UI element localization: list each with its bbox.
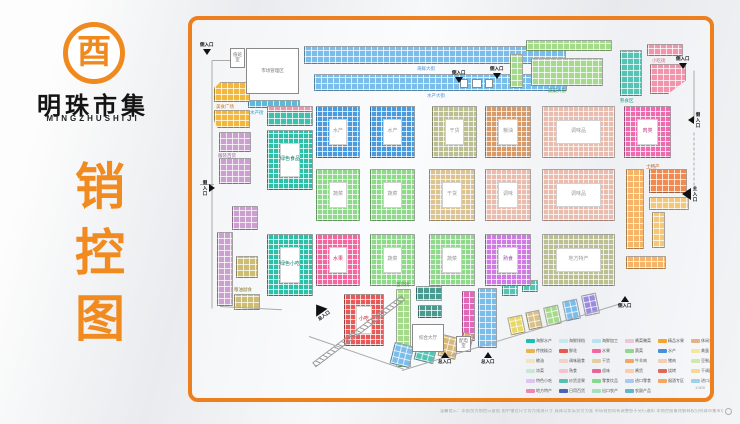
block-label: 肉类 xyxy=(625,107,670,157)
legend-item: 进口海鲜 xyxy=(691,378,710,384)
legend-swatch xyxy=(592,349,601,354)
legend-label: 酱菜腌菜 xyxy=(635,338,651,344)
legend-swatch xyxy=(691,359,700,364)
road-line xyxy=(694,133,695,191)
legend-swatch xyxy=(592,359,601,364)
legend-swatch xyxy=(559,389,568,394)
legend-label: 卤味 xyxy=(602,368,610,374)
legend-item: 出口农产 xyxy=(592,388,624,394)
stall-ring: 地方特产 xyxy=(542,234,615,286)
legend-swatch xyxy=(625,359,634,364)
legend-swatch xyxy=(592,379,601,384)
legend-item: 干货 xyxy=(592,358,624,364)
legend-swatch xyxy=(559,359,568,364)
entrance-marker: 主入口 xyxy=(682,186,698,203)
legend-item: 水产 xyxy=(658,348,690,354)
stall-ring: 调味 xyxy=(485,169,531,221)
area-label: 土特产 xyxy=(646,164,660,170)
legend-label: 猪肉 xyxy=(668,358,676,364)
legend-label: 休闲食品 xyxy=(701,338,710,344)
legend-swatch xyxy=(625,389,634,394)
legend-swatch xyxy=(691,339,700,344)
entrance-marker: 侧入口 xyxy=(452,70,466,83)
entrance-label: 总入口 xyxy=(481,359,495,365)
entrance-label: 侧入口 xyxy=(200,42,214,48)
block-label: 配电室 xyxy=(457,337,470,351)
legend-label: 熟食 xyxy=(569,368,577,374)
legend-item: 猪肉 xyxy=(658,358,690,364)
legend-swatch xyxy=(625,369,634,374)
entrance-marker: 侧入口 xyxy=(618,296,632,309)
legend-swatch xyxy=(559,349,568,354)
legend-label: 传统糕点 xyxy=(536,348,552,354)
entrance-arrow-icon xyxy=(455,77,463,83)
entrance-label: 侧入口 xyxy=(695,112,701,129)
watermark-icon xyxy=(725,408,732,415)
legend-label: 炒货坚果 xyxy=(569,378,585,384)
legend-label: 粮油 xyxy=(536,358,544,364)
stall-ring: 干货 xyxy=(429,169,475,221)
block-label: 综合大厅 xyxy=(413,325,443,351)
block-label: 市场管理区 xyxy=(247,49,298,93)
entrance-marker: 侧入口 xyxy=(490,66,504,79)
legend-label: 牛羊肉 xyxy=(635,358,647,364)
block-label: 干货 xyxy=(433,107,476,157)
area-label: 粮油副食 xyxy=(234,287,252,293)
block-label: 水产 xyxy=(371,107,414,157)
stall-block xyxy=(267,106,313,112)
stall-ring: 粮油 xyxy=(485,106,531,158)
block-label: 调味品 xyxy=(543,170,614,220)
legend-label: 烧烤 xyxy=(668,368,676,374)
stall-ring: 水产 xyxy=(316,106,360,158)
stall-block xyxy=(219,132,251,152)
legend-item: 地方特产 xyxy=(526,388,558,394)
stall-block xyxy=(418,305,442,318)
legend-label: 地方特产 xyxy=(536,388,552,394)
entrance-label: 侧入口 xyxy=(452,70,466,76)
legend-swatch xyxy=(691,369,700,374)
entrance-arrow-icon xyxy=(441,352,449,358)
legend-label: 鲜花 xyxy=(569,348,577,354)
area-label: 海鲜大街 xyxy=(417,66,435,72)
block-label: 蔬菜 xyxy=(317,170,359,220)
entrance-arrow-icon xyxy=(484,352,492,358)
legend: 海鲜水产海鲜排档海鲜加工酱菜腌菜精品水果休闲食品传统糕点鲜花水果蔬菜水产禽蛋粮油… xyxy=(526,338,710,394)
legend-swatch xyxy=(625,349,634,354)
stall-ring: 小吃 xyxy=(344,294,384,346)
building: 综合大厅 xyxy=(412,324,444,352)
legend-swatch xyxy=(658,369,667,374)
legend-swatch xyxy=(691,349,700,354)
legend-item: 农副产品 xyxy=(625,388,657,394)
legend-item: 水果 xyxy=(592,348,624,354)
block-label: 小吃 xyxy=(345,295,383,345)
entrance-marker: 侧入口 xyxy=(202,180,215,197)
legend-item: 熟食 xyxy=(559,368,591,374)
area-label: 熟食区 xyxy=(620,98,634,104)
legend-item: 炒货坚果 xyxy=(559,378,591,384)
legend-item: 豆制品 xyxy=(691,358,710,364)
legend-item: 精品水果 xyxy=(658,338,690,344)
legend-item: 粮油 xyxy=(526,358,558,364)
legend-swatch xyxy=(526,339,535,344)
legend-swatch xyxy=(691,379,700,384)
legend-item: 零食饮品 xyxy=(592,378,624,384)
legend-item: 卤味 xyxy=(592,368,624,374)
entrance-arrow-icon xyxy=(688,116,694,124)
stall-ring: 干货 xyxy=(432,106,477,158)
road-line xyxy=(212,60,230,61)
stall-ring: 水产 xyxy=(370,106,415,158)
entrance-label: 侧入口 xyxy=(676,56,690,62)
area-label: 百货街 xyxy=(396,282,410,288)
scale-note: 1:500 xyxy=(695,385,705,390)
area-label: 美食广场 xyxy=(216,104,234,110)
stall-block xyxy=(219,158,251,184)
entrance-label: 侧入口 xyxy=(202,180,208,197)
legend-label: 调味副食 xyxy=(569,358,585,364)
legend-item: 禽蛋 xyxy=(691,348,710,354)
legend-swatch xyxy=(559,369,568,374)
legend-swatch xyxy=(592,369,601,374)
block-label: 蔬菜 xyxy=(371,235,414,285)
area-label: 服装百货 xyxy=(218,153,236,159)
legend-label: 水果 xyxy=(602,348,610,354)
block-label: 地方特产 xyxy=(543,235,614,285)
stall-block xyxy=(236,256,258,278)
legend-label: 零食饮品 xyxy=(602,378,618,384)
entrance-marker: 总入口 xyxy=(481,352,495,365)
disclaimer-text: 温馨提示：本图仅为销控示意图 图中铺位尺寸均为预测尺寸 具体以实际交付为准 市场… xyxy=(440,409,723,414)
stall-ring: 绿色食品 xyxy=(267,130,313,190)
legend-item: 海鲜加工 xyxy=(592,338,624,344)
legend-item: 日用百货 xyxy=(559,388,591,394)
legend-label: 农副产品 xyxy=(635,388,651,394)
logo-icon: 酉 xyxy=(63,22,125,84)
entrance-marker: 总入口 xyxy=(438,352,452,365)
legend-item: 牛羊肉 xyxy=(625,358,657,364)
stall-block xyxy=(217,232,233,306)
logo-glyph: 酉 xyxy=(77,36,111,70)
entrance-marker: 总入口 xyxy=(310,301,331,323)
brand-name-en: MINGZHUSHIJI xyxy=(0,114,186,123)
stall-ring: 蔬菜 xyxy=(370,169,415,221)
legend-swatch xyxy=(658,349,667,354)
legend-label: 海鲜加工 xyxy=(602,338,618,344)
legend-label: 豆制品 xyxy=(701,358,710,364)
stall-block xyxy=(314,74,567,91)
stall-ring: 绿色小吃 xyxy=(267,234,313,296)
legend-item: 烟酒专区 xyxy=(658,378,690,384)
legend-swatch xyxy=(658,339,667,344)
block-label: 熟食 xyxy=(486,235,530,285)
legend-label: 水产 xyxy=(668,348,676,354)
legend-item: 传统糕点 xyxy=(526,348,558,354)
stall-block xyxy=(510,54,523,88)
legend-label: 特色小吃 xyxy=(536,378,552,384)
stall-block xyxy=(620,50,642,96)
entrance-label: 侧入口 xyxy=(618,303,632,309)
area-label: 水产大街 xyxy=(427,93,445,99)
stall-block xyxy=(626,169,644,249)
legend-swatch xyxy=(526,369,535,374)
legend-label: 干调副食 xyxy=(701,368,710,374)
stall-block xyxy=(214,82,250,102)
legend-swatch xyxy=(526,349,535,354)
block-label: 干货 xyxy=(430,170,474,220)
legend-item: 海鲜排档 xyxy=(559,338,591,344)
block-label: 水产 xyxy=(317,107,359,157)
building xyxy=(472,79,482,88)
block-label: 调味品 xyxy=(543,107,614,157)
legend-swatch xyxy=(625,339,634,344)
legend-item: 酱货 xyxy=(625,368,657,374)
stall-ring: 蔬菜 xyxy=(370,234,415,286)
legend-label: 海鲜排档 xyxy=(569,338,585,344)
stall-block xyxy=(652,212,665,248)
stall-ring: 水果 xyxy=(316,234,360,286)
block-label: 值班室 xyxy=(231,49,244,67)
legend-item: 蔬菜 xyxy=(625,348,657,354)
area-label: 小吃街 xyxy=(652,58,666,64)
entrance-arrow-icon xyxy=(493,73,501,79)
poster: { "branding": { "logo_glyph": "酉", "name… xyxy=(0,0,740,424)
stall-block xyxy=(526,40,612,51)
legend-item: 进口零食 xyxy=(625,378,657,384)
stall-block xyxy=(531,58,603,86)
block-label: 蔬菜 xyxy=(430,235,474,285)
floor-plan: 海鲜水产海鲜排档海鲜加工酱菜腌菜精品水果休闲食品传统糕点鲜花水果蔬菜水产禽蛋粮油… xyxy=(192,20,710,398)
building xyxy=(485,79,493,88)
legend-swatch xyxy=(559,339,568,344)
legend-item: 凉菜 xyxy=(526,368,558,374)
block-label: 绿色食品 xyxy=(268,131,312,189)
stall-block xyxy=(647,44,683,56)
legend-swatch xyxy=(526,389,535,394)
building: 值班室 xyxy=(230,48,245,68)
legend-swatch xyxy=(526,379,535,384)
legend-item: 烧烤 xyxy=(658,368,690,374)
building: 配电室 xyxy=(456,336,471,352)
stall-ring: 肉类 xyxy=(624,106,671,158)
legend-label: 禽蛋 xyxy=(701,348,709,354)
legend-label: 酱货 xyxy=(635,368,643,374)
entrance-marker: 侧入口 xyxy=(688,112,701,129)
legend-label: 凉菜 xyxy=(536,368,544,374)
block-label: 调味 xyxy=(486,170,530,220)
legend-label: 进口海鲜 xyxy=(701,378,710,384)
stall-block xyxy=(416,286,442,301)
entrance-arrow-icon xyxy=(682,188,691,200)
legend-swatch xyxy=(592,389,601,394)
legend-label: 精品水果 xyxy=(668,338,684,344)
stall-ring: 调味品 xyxy=(542,169,615,221)
stall-block xyxy=(626,256,666,269)
area-label: 蔬菜大街 xyxy=(548,88,566,94)
entrance-label: 主入口 xyxy=(692,186,698,203)
entrance-arrow-icon xyxy=(203,49,211,55)
entrance-label: 侧入口 xyxy=(490,66,504,72)
stall-ring: 熟食 xyxy=(485,234,531,286)
legend-swatch xyxy=(559,379,568,384)
block-label: 水果 xyxy=(317,235,359,285)
legend-label: 出口农产 xyxy=(602,388,618,394)
legend-swatch xyxy=(658,379,667,384)
legend-label: 海鲜水产 xyxy=(536,338,552,344)
map-frame: 海鲜水产海鲜排档海鲜加工酱菜腌菜精品水果休闲食品传统糕点鲜花水果蔬菜水产禽蛋粮油… xyxy=(188,16,714,402)
legend-swatch xyxy=(526,359,535,364)
legend-swatch xyxy=(658,359,667,364)
legend-item: 海鲜水产 xyxy=(526,338,558,344)
legend-item: 干调副食 xyxy=(691,368,710,374)
entrance-label: 总入口 xyxy=(438,359,452,365)
stall-block xyxy=(232,206,258,230)
legend-item: 酱菜腌菜 xyxy=(625,338,657,344)
legend-label: 烟酒专区 xyxy=(668,378,684,384)
legend-swatch xyxy=(625,379,634,384)
stall-block xyxy=(478,288,497,348)
block-label: 粮油 xyxy=(486,107,530,157)
stall-ring: 蔬菜 xyxy=(316,169,360,221)
legend-item: 特色小吃 xyxy=(526,378,558,384)
footer: 温馨提示：本图仅为销控示意图 图中铺位尺寸均为预测尺寸 具体以实际交付为准 市场… xyxy=(440,408,732,415)
stall-ring: 调味品 xyxy=(542,106,615,158)
legend-item: 调味副食 xyxy=(559,358,591,364)
block-label: 绿色小吃 xyxy=(268,235,312,295)
building: 市场管理区 xyxy=(246,48,299,94)
legend-label: 进口零食 xyxy=(635,378,651,384)
brand-panel: 酉 明珠市集 MINGZHUSHIJI 销控图 xyxy=(0,0,186,424)
legend-label: 干货 xyxy=(602,358,610,364)
entrance-arrow-icon xyxy=(209,184,215,192)
legend-label: 日用百货 xyxy=(569,388,585,394)
legend-item: 鲜花 xyxy=(559,348,591,354)
entrance-arrow-icon xyxy=(679,63,687,69)
entrance-arrow-icon xyxy=(621,296,629,302)
page-title: 销控图 xyxy=(68,160,123,358)
stall-ring: 蔬菜 xyxy=(429,234,475,286)
legend-item: 休闲食品 xyxy=(691,338,710,344)
stall-block xyxy=(214,110,250,128)
entrance-marker: 侧入口 xyxy=(200,42,214,55)
legend-label: 蔬菜 xyxy=(635,348,643,354)
block-label: 蔬菜 xyxy=(371,170,414,220)
area-label: 水产街 xyxy=(250,110,264,116)
entrance-marker: 侧入口 xyxy=(676,56,690,69)
legend-swatch xyxy=(592,339,601,344)
